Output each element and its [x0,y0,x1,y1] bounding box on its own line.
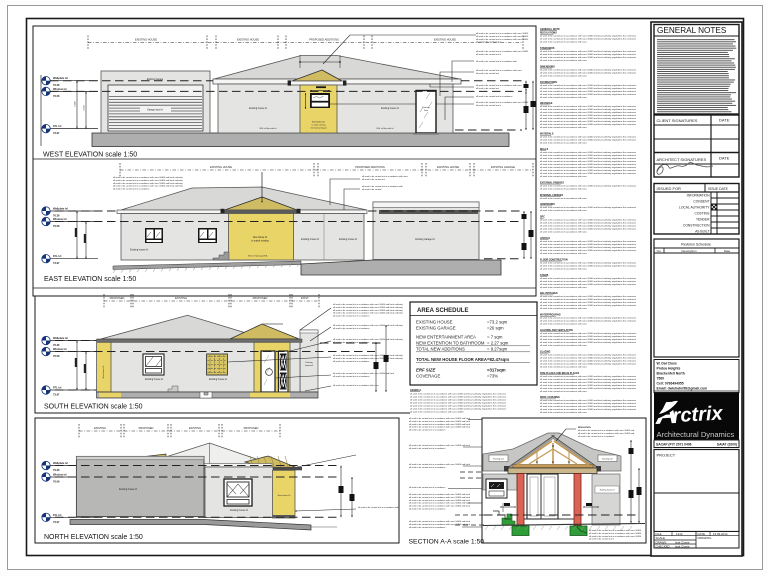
svg-text:EXISTING HOUSE: EXISTING HOUSE [416,320,453,325]
svg-text:Cell: 0786494955: Cell: 0786494955 [657,382,684,386]
svg-text:2 100: 2 100 [84,104,86,110]
svg-text:LOCAL AUTHORITY: LOCAL AUTHORITY [679,206,710,210]
svg-text:=317sqm: =317sqm [487,368,506,373]
svg-text:DATE: DATE [698,532,706,536]
svg-text:NORTH ELEVATION scale 1:50: NORTH ELEVATION scale 1:50 [44,534,143,541]
svg-text:EAST ELEVATION scale 1:50: EAST ELEVATION scale 1:50 [44,276,136,283]
svg-text:1212: 1212 [676,532,683,536]
svg-text:TENDER: TENDER [696,218,710,222]
svg-text:COVERAGE: COVERAGE [416,374,440,379]
svg-text:Revision Schedule: Revision Schedule [681,243,711,247]
svg-text:ERF SIZE: ERF SIZE [416,368,435,373]
svg-text:SACAP (PrT 2071 0406: SACAP (PrT 2071 0406 [656,442,692,446]
svg-text:Description: Description [681,249,696,253]
svg-text:=82.47sqm: =82.47sqm [487,357,509,362]
svg-text:Brackenfell North: Brackenfell North [657,372,685,376]
svg-text:Isak Cloete: Isak Cloete [675,544,690,548]
svg-text:AREA SCHEDULE: AREA SCHEDULE [417,308,468,314]
svg-text:= 2.27 sqm: = 2.27 sqm [487,341,509,346]
svg-text:INFORMATION: INFORMATION [687,194,710,198]
svg-text:PROJECT: PROJECT [657,453,676,458]
svg-text:=73.2 sqm: =73.2 sqm [487,320,508,325]
svg-text:= 7 sqm: = 7 sqm [487,335,503,340]
svg-text:SECTION A-A scale 1:50: SECTION A-A scale 1:50 [409,539,485,546]
svg-text:7560: 7560 [657,377,665,381]
svg-text:2 400: 2 400 [75,100,77,106]
svg-text:DATE: DATE [719,156,730,161]
svg-text:TOTAL NEW HOUSE FLOOR AREA: TOTAL NEW HOUSE FLOOR AREA [416,357,487,362]
svg-text:CLIENT SIGNATURES: CLIENT SIGNATURES [657,118,698,123]
svg-text:DATE: DATE [719,118,730,123]
svg-text:CONSTRUCTION: CONSTRUCTION [683,224,710,228]
svg-text:Protea Heights: Protea Heights [657,367,681,371]
svg-text:New house lvl: New house lvl [278,495,291,497]
svg-text:WEST ELEVATION scale 1:50: WEST ELEVATION scale 1:50 [43,152,137,159]
svg-text:Date: Date [724,249,731,253]
svg-text:Isak Cloete: Isak Cloete [675,540,690,544]
svg-text:ISSUED FOR: ISSUED FOR [657,186,682,191]
svg-text:EXISTING GARAGE: EXISTING GARAGE [416,326,456,331]
svg-text:DRAWING: DRAWING [698,536,713,540]
svg-text:AS BUILT: AS BUILT [695,230,709,234]
svg-text:SOUTH ELEVATION scale 1:50: SOUTH ELEVATION scale 1:50 [44,404,143,411]
svg-text:ARCHITECT SIGNATURES: ARCHITECT SIGNATURES [657,157,707,162]
svg-text:= 9.27sqm: = 9.27sqm [487,347,508,352]
svg-text:=26 sqm: =26 sqm [487,326,504,331]
svg-text:Door: Door [424,110,429,112]
svg-text:Min 1:5 fall away NGL: Min 1:5 fall away NGL [248,256,268,258]
svg-text:15.09.2014: 15.09.2014 [713,532,728,536]
svg-text:=73%: =73% [487,374,498,379]
svg-text:DRAWN: DRAWN [656,540,667,544]
svg-text:NEW EXTENTION TO BATHROOM: NEW EXTENTION TO BATHROOM [416,341,485,346]
svg-text:New house lvl: New house lvl [253,237,268,239]
svg-text:CONSENT: CONSENT [693,200,709,204]
svg-text:SAIAT (3200): SAIAT (3200) [717,442,737,446]
svg-text:No.: No. [657,249,662,253]
svg-text:FILE: FILE [656,532,662,536]
svg-text:ISSUE DATE: ISSUE DATE [708,187,729,191]
svg-text:GENERAL NOTES: GENERAL NOTES [657,26,727,35]
svg-text:borewall: borewall [305,365,313,367]
svg-text:W. Dal Close: W. Dal Close [657,362,677,366]
svg-text:TOTAL NEW ADDITIONS: TOTAL NEW ADDITIONS [416,347,465,352]
svg-text:SCALE: SCALE [656,536,666,540]
svg-text:rctrix: rctrix [672,402,724,427]
svg-text:CHECKED: CHECKED [656,544,670,548]
svg-text:New house lvl: New house lvl [103,365,105,378]
svg-text:Email: dwiehahn58@gmail.com: Email: dwiehahn58@gmail.com [657,387,708,391]
svg-text:COSTING: COSTING [694,212,709,216]
svg-text:NEW ENTERTAINMENT AREA: NEW ENTERTAINMENT AREA [416,335,476,340]
svg-text:Architectural Dynamics: Architectural Dynamics [657,430,735,439]
